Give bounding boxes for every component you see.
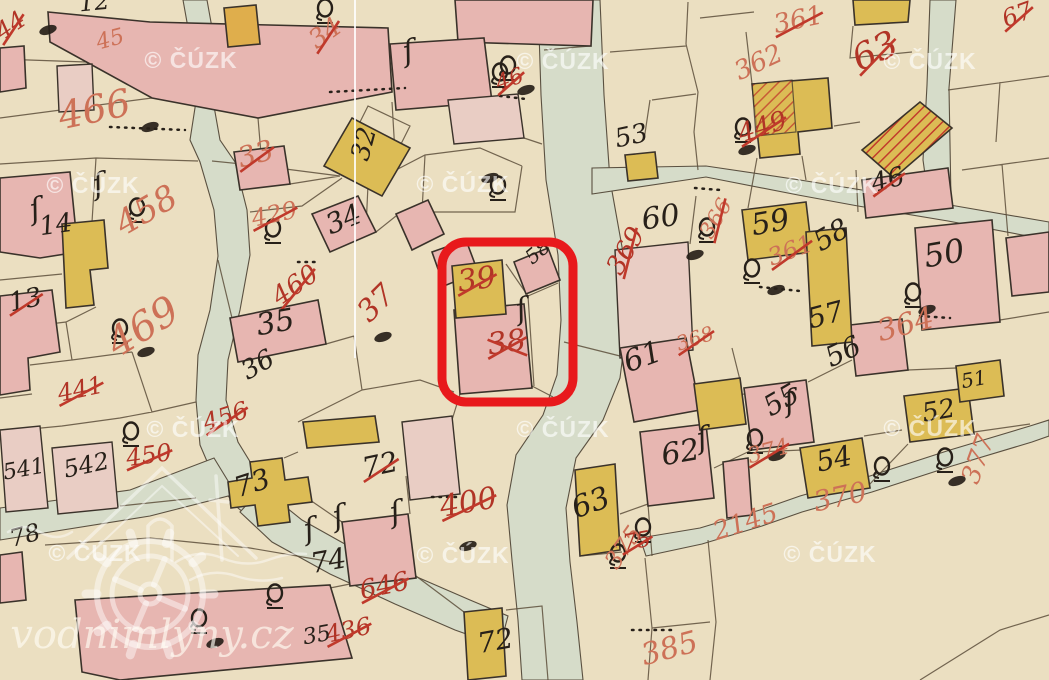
cuzk-watermark-text: © ČÚZK [146, 415, 239, 442]
cuzk-watermark-text: © ČÚZK [416, 541, 509, 568]
parcel-number: 74 [308, 541, 349, 580]
parcel-number-text: 51 [959, 365, 988, 393]
parcel-number-text: 12 [78, 0, 111, 17]
wheel-tooth [166, 533, 169, 543]
wheel-tooth [98, 556, 107, 562]
building [224, 5, 260, 47]
parcel-number: 51 [959, 365, 988, 393]
parcel-number-text: 14 [37, 208, 74, 242]
wheel-tooth [130, 533, 133, 543]
parcel-number-text: 72 [475, 621, 516, 660]
parcel-number-text: 35 [301, 621, 333, 650]
parcel-number: 50 [921, 231, 968, 275]
map-viewport[interactable]: ſſſſſſſſſ 466334584691314344294603536373… [0, 0, 1049, 680]
parcel-number-text: 35 [254, 302, 298, 343]
scan-fold-line [354, 0, 356, 358]
parcel-number-text: 60 [639, 198, 682, 238]
building [1006, 232, 1049, 296]
cadastral-map-image[interactable]: ſſſſſſſſſ 466334584691314344294603536373… [0, 0, 1049, 680]
building [303, 416, 379, 448]
parcel-number: 38 [484, 322, 529, 362]
cuzk-watermark-text: © ČÚZK [46, 171, 139, 198]
cuzk-watermark-text: © ČÚZK [783, 540, 876, 567]
parcel-number-text: 74 [308, 541, 349, 580]
parcel-number: 35 [254, 302, 298, 343]
cuzk-watermark-text: © ČÚZK [516, 415, 609, 442]
parcel-number: 12 [78, 0, 111, 17]
vodnimlyny-brand-text: vodnimlyny.cz [10, 612, 294, 658]
cuzk-watermark-text: © ČÚZK [883, 414, 976, 441]
building [0, 46, 26, 92]
cuzk-watermark-text: © ČÚZK [785, 171, 878, 198]
parcel-number-text: 62 [659, 432, 703, 473]
parcel-number-text: 50 [921, 231, 968, 275]
parcel-number: 39 [454, 259, 499, 299]
cuzk-watermark-text: © ČÚZK [516, 47, 609, 74]
building [625, 152, 658, 181]
parcel-number: 35 [301, 621, 333, 650]
building [853, 0, 910, 25]
cuzk-watermark-text: © ČÚZK [883, 47, 976, 74]
building [448, 94, 524, 144]
building [0, 552, 26, 603]
parcel-number: 14 [37, 208, 74, 242]
cuzk-watermark-text: © ČÚZK [144, 46, 237, 73]
cuzk-watermark-text: © ČÚZK [416, 170, 509, 197]
parcel-number: 62 [659, 432, 703, 473]
parcel-number: 72 [475, 621, 516, 660]
parcel-number: 60 [639, 198, 682, 238]
wheel-tooth [193, 556, 202, 562]
